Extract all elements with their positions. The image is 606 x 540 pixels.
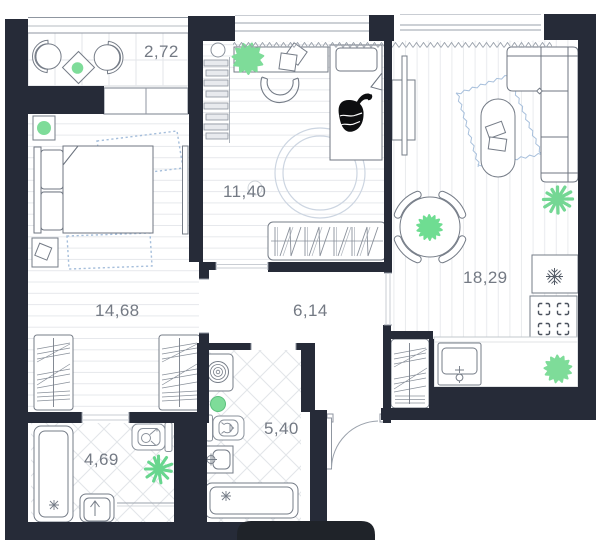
svg-text:4,69: 4,69 xyxy=(84,450,119,469)
svg-text:14,68: 14,68 xyxy=(95,301,140,320)
svg-text:18,29: 18,29 xyxy=(463,268,508,287)
svg-text:2,72: 2,72 xyxy=(144,42,179,61)
svg-text:5,40: 5,40 xyxy=(264,419,299,438)
svg-text:11,40: 11,40 xyxy=(223,182,266,201)
svg-text:6,14: 6,14 xyxy=(293,301,328,320)
